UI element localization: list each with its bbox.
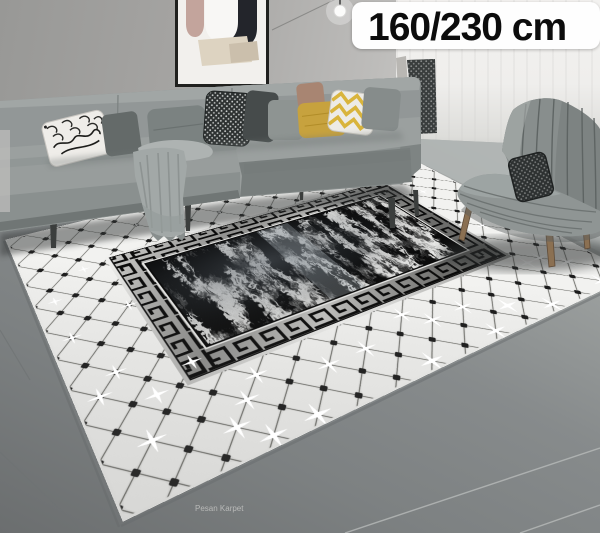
svg-text:Pesan Karpet: Pesan Karpet [195,504,244,513]
